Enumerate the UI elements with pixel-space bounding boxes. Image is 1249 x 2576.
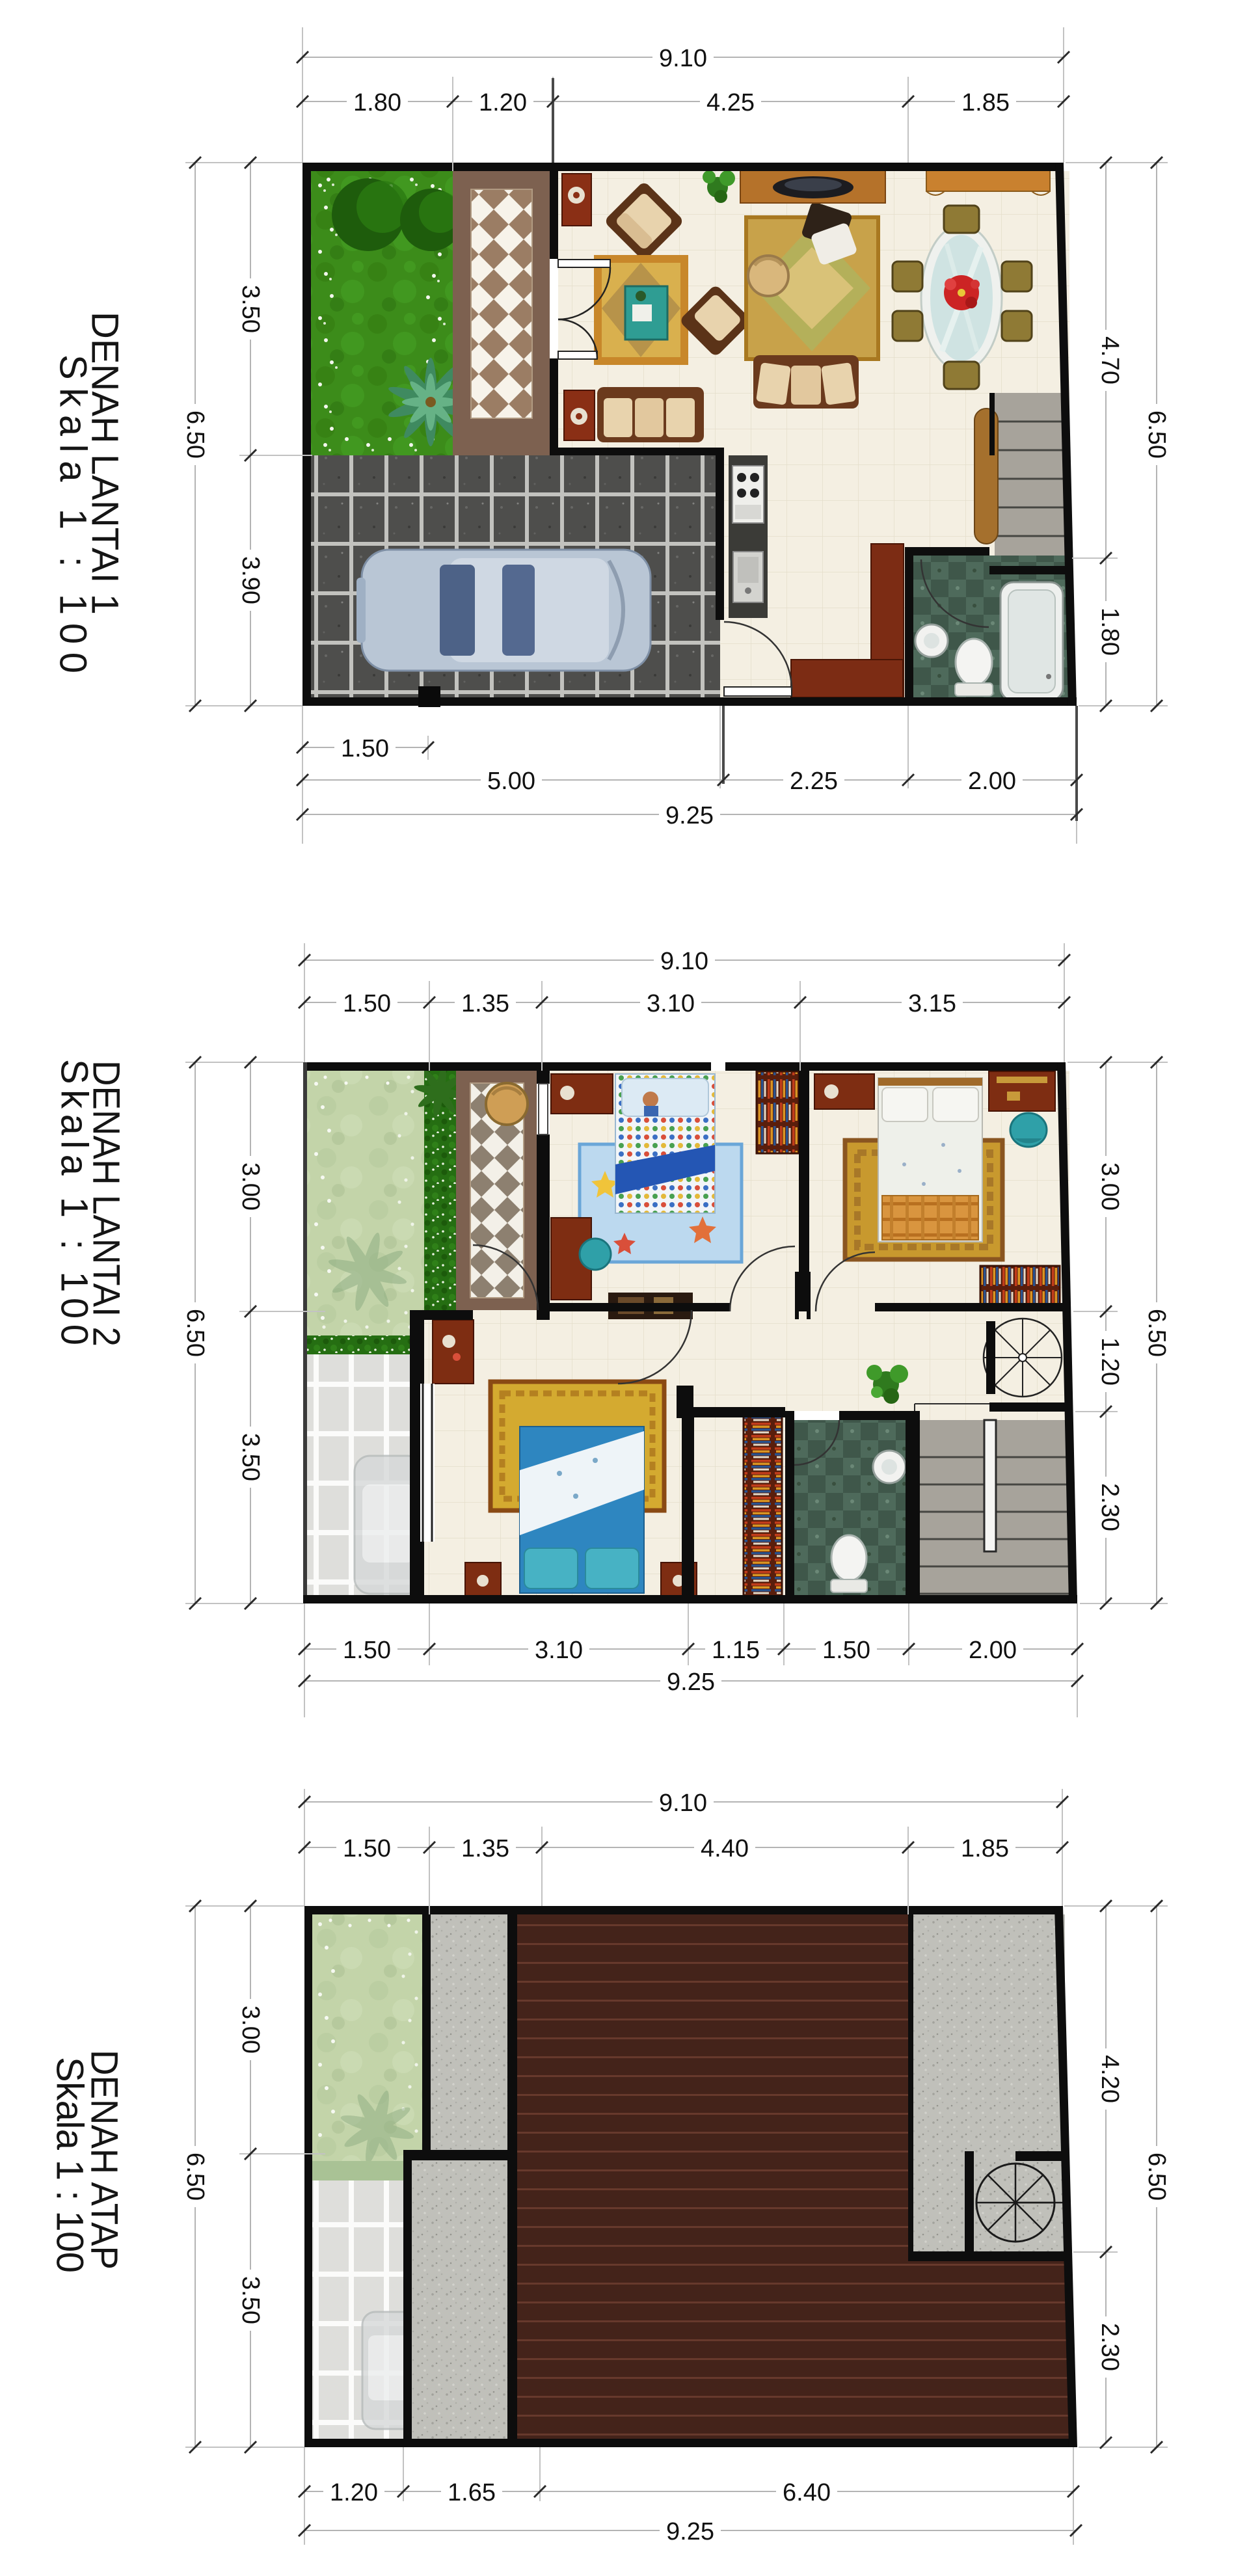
svg-text:1.20: 1.20 xyxy=(479,89,527,116)
svg-text:3.00: 3.00 xyxy=(237,1162,264,1211)
svg-text:9.25: 9.25 xyxy=(666,2518,714,2545)
svg-text:Skala 1 : 100: Skala 1 : 100 xyxy=(53,1059,96,1345)
svg-text:1.35: 1.35 xyxy=(461,1835,509,1862)
svg-text:1.50: 1.50 xyxy=(343,990,391,1017)
svg-text:2.00: 2.00 xyxy=(968,768,1016,795)
svg-text:2.25: 2.25 xyxy=(790,768,838,795)
svg-text:6.50: 6.50 xyxy=(1143,2153,1170,2201)
svg-text:1.80: 1.80 xyxy=(1096,608,1123,656)
svg-text:4.70: 4.70 xyxy=(1096,336,1123,384)
svg-text:1.20: 1.20 xyxy=(1096,1337,1123,1386)
svg-text:1.85: 1.85 xyxy=(961,89,1010,116)
svg-text:2.00: 2.00 xyxy=(969,1637,1017,1664)
svg-text:3.90: 3.90 xyxy=(237,556,264,604)
svg-text:Skala 1 : 100: Skala 1 : 100 xyxy=(49,2057,91,2273)
svg-text:1.20: 1.20 xyxy=(330,2479,378,2506)
svg-text:9.10: 9.10 xyxy=(659,1790,707,1817)
svg-text:1.50: 1.50 xyxy=(343,1835,391,1862)
svg-text:1.85: 1.85 xyxy=(961,1835,1009,1862)
svg-text:1.80: 1.80 xyxy=(353,89,401,116)
svg-text:6.50: 6.50 xyxy=(1143,410,1170,459)
svg-text:9.10: 9.10 xyxy=(659,45,707,72)
svg-text:3.50: 3.50 xyxy=(237,285,264,333)
svg-text:6.40: 6.40 xyxy=(783,2479,831,2506)
svg-text:1.50: 1.50 xyxy=(343,1637,391,1664)
svg-text:9.25: 9.25 xyxy=(665,802,714,829)
svg-text:3.50: 3.50 xyxy=(237,1433,264,1481)
svg-text:6.50: 6.50 xyxy=(181,1309,209,1357)
svg-text:3.10: 3.10 xyxy=(535,1637,583,1664)
svg-text:3.15: 3.15 xyxy=(908,990,956,1017)
svg-text:1.50: 1.50 xyxy=(822,1637,870,1664)
svg-text:1.65: 1.65 xyxy=(448,2479,496,2506)
svg-text:2.30: 2.30 xyxy=(1096,1483,1123,1531)
svg-text:9.10: 9.10 xyxy=(660,948,708,975)
svg-text:4.40: 4.40 xyxy=(701,1835,749,1862)
svg-text:3.10: 3.10 xyxy=(647,990,695,1017)
svg-text:Skala 1 : 100: Skala 1 : 100 xyxy=(52,355,94,673)
svg-text:3.50: 3.50 xyxy=(237,2276,264,2324)
svg-text:1.15: 1.15 xyxy=(712,1637,760,1664)
svg-text:9.25: 9.25 xyxy=(667,1669,715,1696)
svg-text:5.00: 5.00 xyxy=(487,768,535,795)
svg-text:3.00: 3.00 xyxy=(1096,1162,1123,1211)
svg-text:1.50: 1.50 xyxy=(341,735,389,762)
svg-text:1.35: 1.35 xyxy=(461,990,509,1017)
svg-text:6.50: 6.50 xyxy=(181,410,209,459)
svg-text:4.20: 4.20 xyxy=(1096,2055,1123,2103)
svg-text:6.50: 6.50 xyxy=(1143,1309,1170,1357)
svg-text:2.30: 2.30 xyxy=(1096,2323,1123,2371)
svg-text:3.00: 3.00 xyxy=(237,2006,264,2054)
svg-text:6.50: 6.50 xyxy=(181,2153,209,2201)
svg-text:4.25: 4.25 xyxy=(706,89,755,116)
